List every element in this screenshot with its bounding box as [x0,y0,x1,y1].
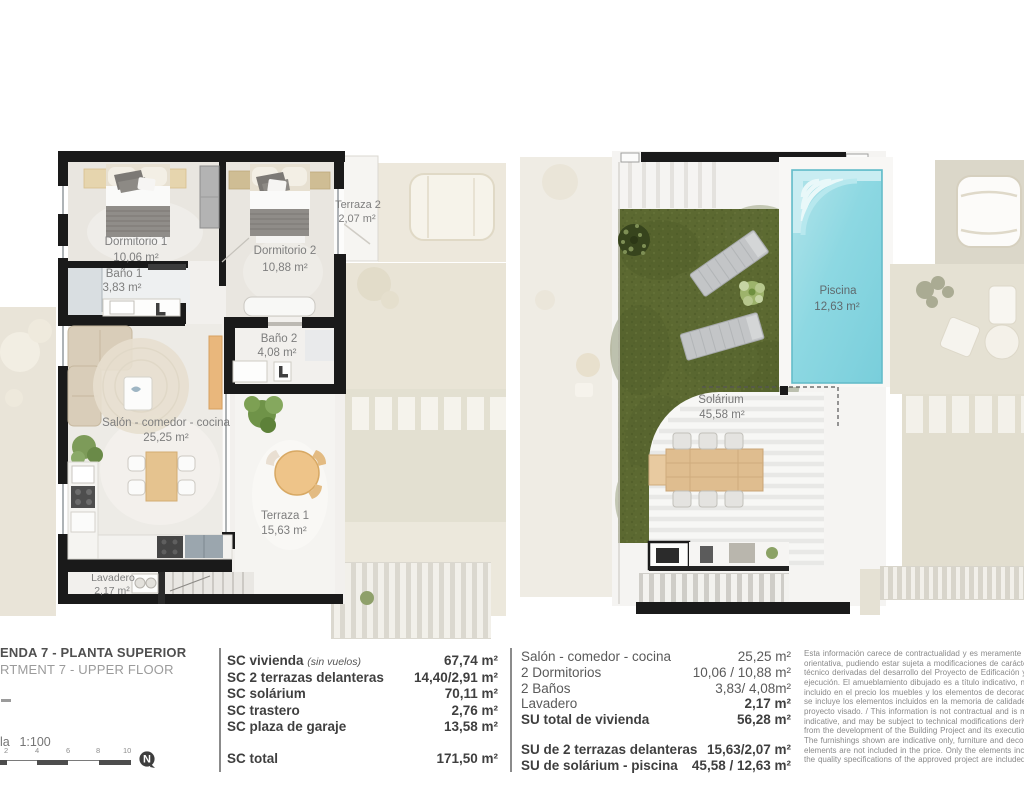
svg-text:Solárium: Solárium [698,394,743,406]
svg-text:2,07 m²: 2,07 m² [338,213,376,225]
svg-text:12,63 m²: 12,63 m² [814,301,860,313]
svg-text:Lavadero: Lavadero [91,572,135,584]
svg-text:Baño 2: Baño 2 [261,333,297,345]
svg-text:10,88 m²: 10,88 m² [262,262,308,274]
svg-text:15,63 m²: 15,63 m² [261,525,307,537]
svg-text:3,83 m²: 3,83 m² [103,282,142,294]
svg-text:10,06 m²: 10,06 m² [113,252,159,264]
svg-text:Terraza 1: Terraza 1 [261,510,309,522]
svg-text:25,25 m²: 25,25 m² [143,432,189,444]
svg-text:Salón - comedor - cocina: Salón - comedor - cocina [102,417,230,429]
svg-text:N: N [143,754,151,766]
svg-text:4,08 m²: 4,08 m² [258,347,297,359]
svg-text:Dormitorio 2: Dormitorio 2 [254,245,317,257]
svg-text:Baño 1: Baño 1 [106,268,142,280]
svg-text:2,17 m²: 2,17 m² [94,585,130,597]
svg-text:Terraza 2: Terraza 2 [335,199,381,211]
svg-text:Dormitorio 1: Dormitorio 1 [105,236,168,248]
svg-text:45,58 m²: 45,58 m² [699,409,745,421]
svg-text:Piscina: Piscina [819,285,857,297]
